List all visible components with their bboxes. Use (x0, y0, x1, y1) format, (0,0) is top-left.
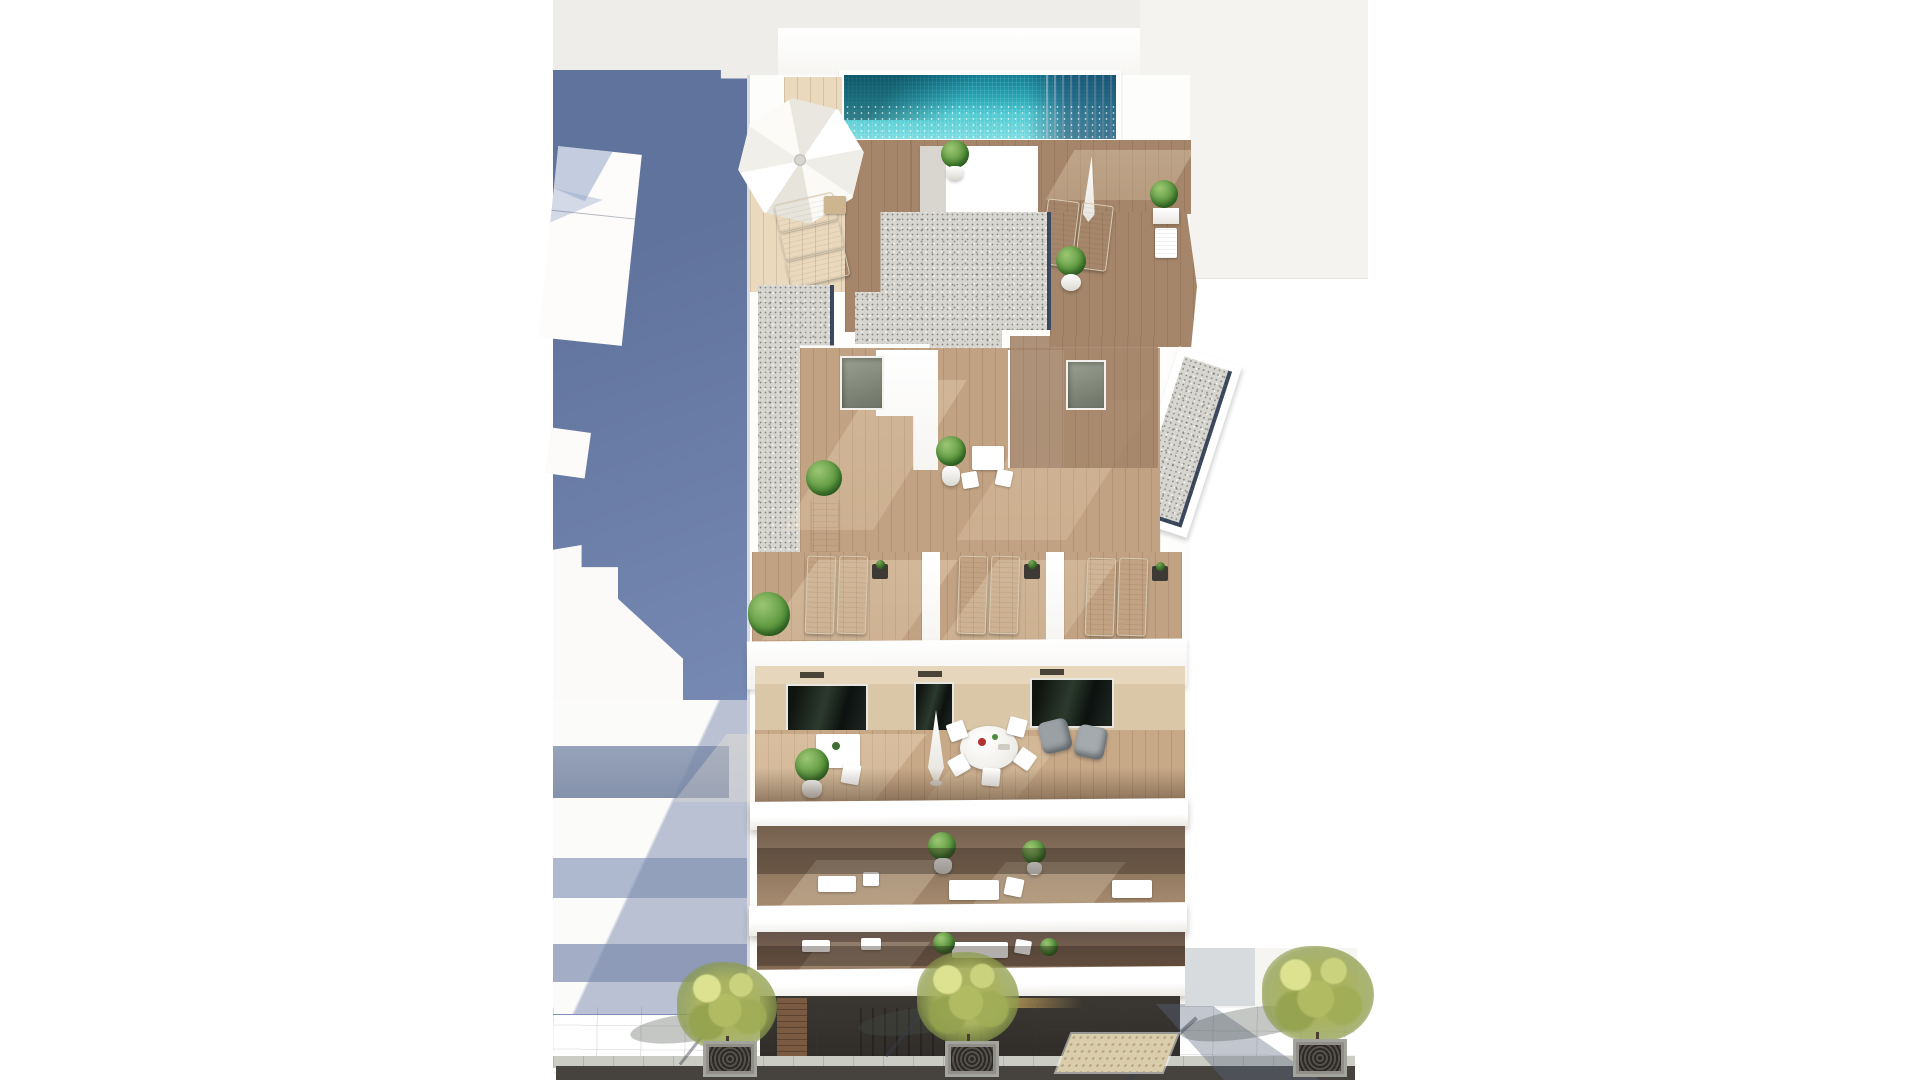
roof-plant (1150, 180, 1178, 208)
rooftop-pool (844, 75, 1116, 139)
roof-plant (1056, 246, 1086, 276)
table-plant (1156, 562, 1165, 571)
balcony-chair (818, 876, 856, 892)
terrace-plant-pot (942, 466, 960, 486)
lounger-divider (922, 552, 940, 644)
sun-lounger (957, 556, 989, 635)
sliding-glass-door (786, 684, 868, 736)
tree-grate (948, 1044, 996, 1074)
render-stage (0, 0, 1920, 1080)
terrace-plant (806, 460, 842, 496)
sun-lounger (1117, 558, 1149, 637)
balcony-chair (1112, 880, 1152, 898)
roof-plant (941, 140, 969, 168)
table-item-red (978, 738, 986, 746)
ceiling-vent (918, 671, 942, 677)
table-decor (832, 742, 840, 750)
terrace-door (1066, 360, 1106, 410)
tree-grate (1296, 1042, 1344, 1074)
balcony-chair (1003, 876, 1024, 897)
roof-chair (1155, 228, 1177, 258)
stair-bulkhead (920, 146, 1038, 212)
lounger-terrace-plant (748, 592, 790, 636)
tree-grate (706, 1044, 754, 1074)
balcony-glass (757, 848, 1185, 874)
balcony-slab (749, 902, 1187, 936)
terrace-table (972, 446, 1004, 470)
table-plant (876, 560, 885, 569)
balcony-chair (863, 872, 879, 886)
balcony-table-set (949, 880, 999, 900)
street-tree (917, 952, 1019, 1044)
sun-lounger (837, 556, 869, 635)
sun-lounger (805, 556, 837, 635)
planter-box (1153, 208, 1179, 224)
terrace-chair (995, 469, 1014, 488)
sliding-glass-door (1030, 678, 1114, 728)
roof-plant-pot (947, 166, 963, 180)
table-item-tray (998, 744, 1010, 750)
lounger-divider (1046, 552, 1064, 644)
table-item-green (992, 734, 998, 740)
table-plant (1028, 560, 1037, 569)
terrace-plant (936, 436, 966, 466)
plant-stand (812, 498, 838, 558)
roof-side-table (824, 196, 846, 214)
right-neighbor-wall-shadow (1185, 948, 1255, 1006)
neighbor-roof-piece-small (545, 427, 591, 478)
ceiling-vent (1040, 669, 1064, 675)
sun-lounger (989, 556, 1021, 635)
terrace-door (840, 356, 884, 410)
street-tree (1262, 946, 1374, 1042)
terrace-chair (961, 471, 980, 490)
roof-umbrella-hub (794, 154, 806, 166)
sun-lounger (1085, 558, 1117, 637)
roof-plant-pot (1061, 274, 1081, 291)
pool-sparkle (844, 104, 1116, 139)
ceiling-vent (800, 672, 824, 678)
tactile-paving (1056, 1034, 1177, 1072)
